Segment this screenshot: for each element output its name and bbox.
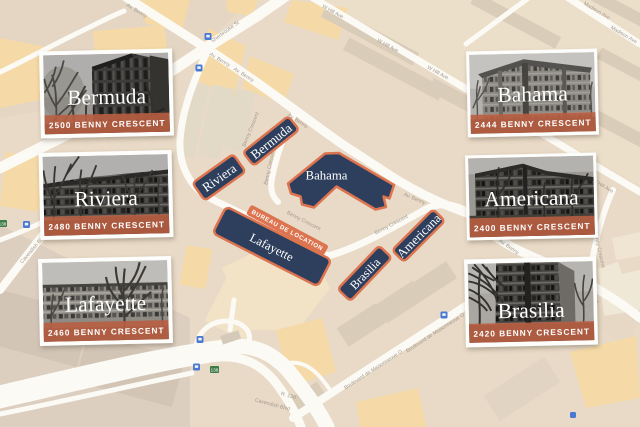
svg-text:Bahama: Bahama bbox=[306, 169, 348, 183]
svg-text:Lafayette: Lafayette bbox=[65, 291, 147, 317]
svg-text:Americana: Americana bbox=[484, 185, 579, 211]
svg-text:138: 138 bbox=[211, 367, 219, 372]
svg-text:138: 138 bbox=[0, 221, 7, 226]
svg-text:Brasilia: Brasilia bbox=[497, 298, 565, 324]
svg-text:Riviera: Riviera bbox=[74, 186, 138, 211]
svg-text:Bahama: Bahama bbox=[497, 81, 568, 107]
svg-text:Bermuda: Bermuda bbox=[67, 84, 147, 110]
